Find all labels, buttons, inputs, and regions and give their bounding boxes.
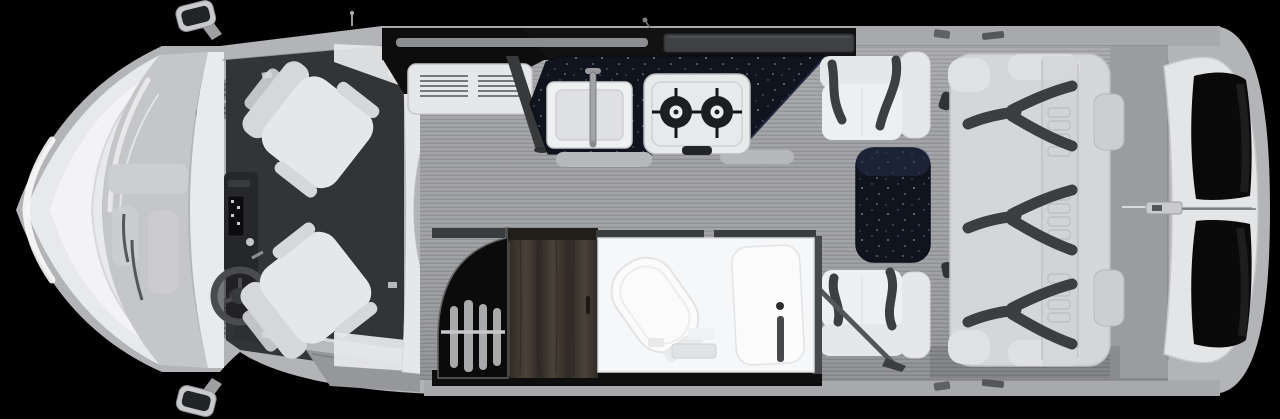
shower xyxy=(731,244,805,365)
latch-detail xyxy=(1152,205,1162,211)
defroster-panel-2 xyxy=(148,210,178,294)
bath-item xyxy=(648,338,664,347)
table-top-band xyxy=(856,148,930,176)
shower-threshold xyxy=(672,344,716,358)
seat-rail-4 xyxy=(388,282,397,288)
bath-shelf xyxy=(688,328,714,340)
galley-window xyxy=(664,34,854,52)
dash-vent xyxy=(228,180,250,187)
sliding-door xyxy=(508,228,598,378)
counter-ledge-1 xyxy=(556,152,652,167)
rv-floorplan-svg xyxy=(0,0,1280,419)
door-handle xyxy=(586,296,590,314)
faucet xyxy=(590,72,596,146)
door-track xyxy=(508,228,598,240)
stove-handle xyxy=(682,146,712,155)
sofa-armrest-bottom xyxy=(1094,270,1124,326)
shower-column xyxy=(777,316,784,362)
dash-top-reflection xyxy=(108,164,188,194)
shower-head xyxy=(776,302,784,310)
dinette-table xyxy=(856,148,930,262)
dash-knob xyxy=(246,238,254,246)
wardrobe-header xyxy=(432,228,508,238)
rear-sofa xyxy=(948,54,1124,366)
sofa-backrest xyxy=(1042,56,1078,366)
rv-floorplan-image xyxy=(0,0,1280,419)
rear-door-latch xyxy=(1146,202,1182,214)
dashboard xyxy=(224,172,263,274)
seatbelt xyxy=(889,272,892,326)
faucet-spout xyxy=(590,141,597,148)
stove xyxy=(644,74,750,155)
dinette-seat-front xyxy=(820,52,930,140)
bathroom xyxy=(596,230,822,374)
sofa-corner-cushion-bottom xyxy=(948,330,990,364)
infotainment-screen xyxy=(228,196,244,236)
sofa-corner-cushion-top xyxy=(948,58,990,92)
cabinet-lip-highlight xyxy=(396,38,648,47)
sofa-armrest-top xyxy=(1094,94,1124,150)
